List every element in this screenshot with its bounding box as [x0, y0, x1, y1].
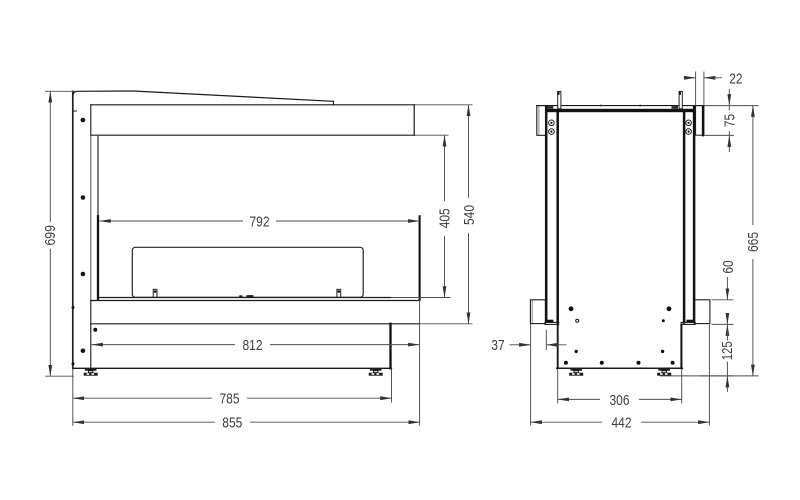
svg-text:60: 60	[720, 260, 737, 273]
svg-text:22: 22	[729, 71, 742, 88]
svg-text:792: 792	[250, 213, 270, 230]
svg-text:37: 37	[491, 337, 504, 354]
svg-text:75: 75	[722, 114, 739, 127]
svg-text:442: 442	[612, 415, 632, 432]
svg-text:665: 665	[745, 232, 762, 252]
svg-text:405: 405	[437, 208, 454, 228]
svg-text:812: 812	[243, 337, 263, 354]
svg-text:785: 785	[220, 391, 240, 408]
svg-text:306: 306	[610, 392, 630, 409]
svg-text:699: 699	[42, 225, 59, 246]
svg-text:855: 855	[222, 415, 242, 432]
svg-text:125: 125	[719, 341, 736, 360]
svg-text:540: 540	[461, 205, 478, 225]
